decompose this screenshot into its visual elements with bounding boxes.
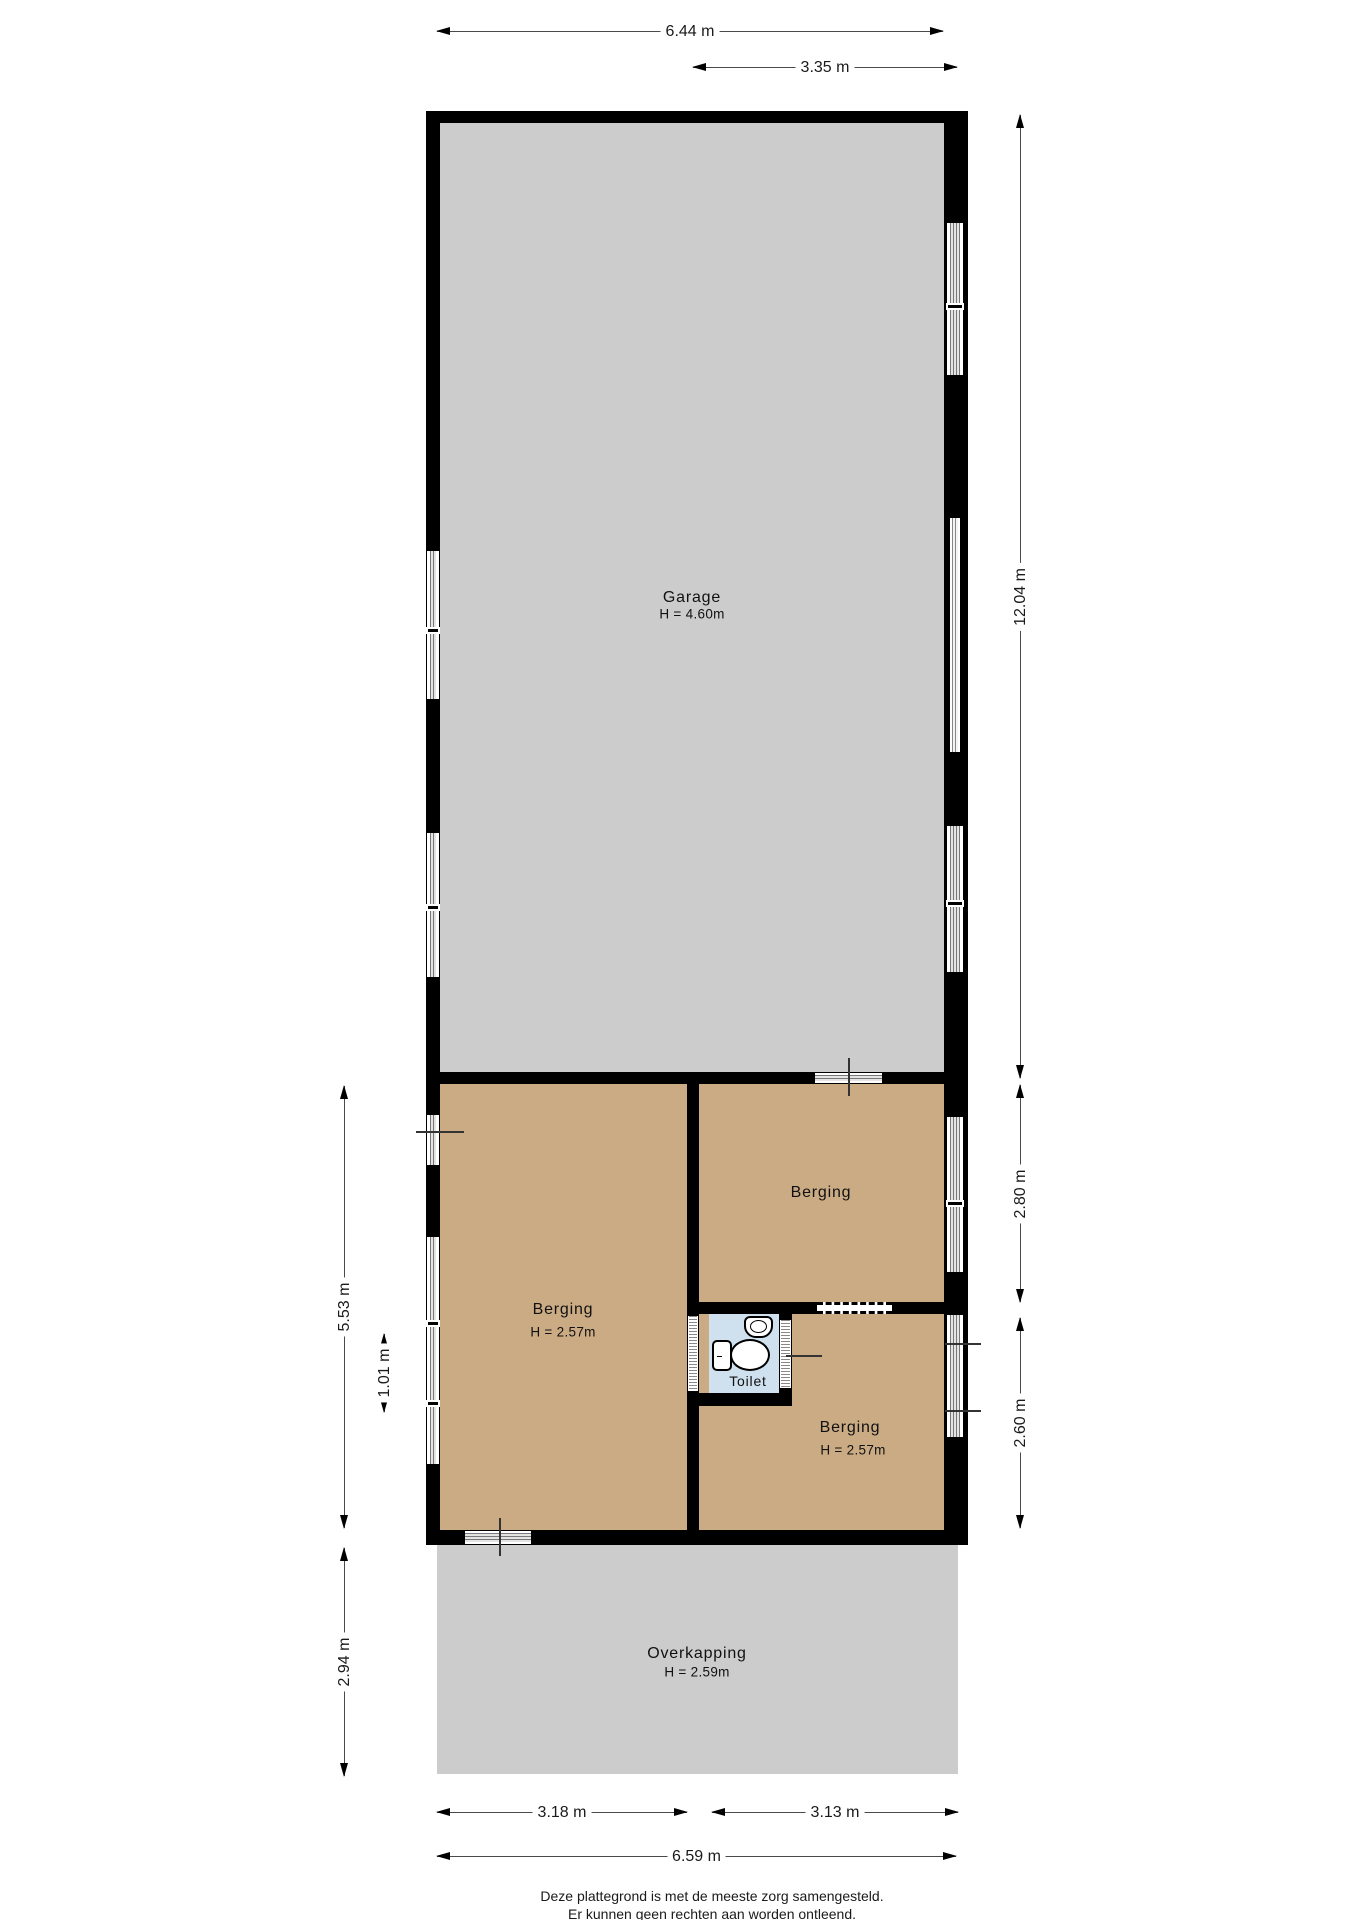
window-icon bbox=[947, 220, 963, 378]
wall-opening-dashed bbox=[817, 1302, 892, 1314]
window-icon bbox=[947, 823, 963, 975]
dimension-value: 5.53 m bbox=[335, 1278, 355, 1337]
dimension-bottom-right: 3.13 m bbox=[712, 1812, 958, 1813]
arrow-left-icon bbox=[692, 63, 706, 71]
window-icon bbox=[462, 1531, 534, 1544]
floorplan-page: Garage H = 4.60m Berging H = 2.57m Bergi… bbox=[0, 0, 1358, 1920]
footer-disclaimer-line1: Deze plattegrond is met de meeste zorg s… bbox=[540, 1888, 883, 1904]
window-mullion-icon bbox=[426, 1400, 440, 1407]
dimension-value: 12.04 m bbox=[1011, 563, 1031, 631]
window-icon bbox=[950, 515, 960, 755]
dimension-top-partial: 3.35 m bbox=[693, 67, 957, 68]
arrow-right-icon bbox=[945, 1808, 959, 1816]
window-icon bbox=[947, 1312, 963, 1440]
arrow-left-icon bbox=[711, 1808, 725, 1816]
berging-bottom-right-height-label: H = 2.57m bbox=[820, 1443, 885, 1458]
arrow-left-icon bbox=[436, 1852, 450, 1860]
footer-disclaimer-line2: Er kunnen geen rechten aan worden ontlee… bbox=[568, 1906, 856, 1920]
window-icon bbox=[427, 1112, 439, 1168]
dimension-value: 2.94 m bbox=[335, 1633, 355, 1692]
arrow-right-icon bbox=[943, 1852, 957, 1860]
window-mullion-icon bbox=[946, 303, 964, 310]
dimension-left-berging: 5.53 m bbox=[344, 1086, 345, 1528]
dimension-value: 3.13 m bbox=[806, 1803, 865, 1823]
dimension-left-overkapping: 2.94 m bbox=[344, 1548, 345, 1776]
window-tick-icon bbox=[786, 1355, 822, 1357]
arrow-down-icon bbox=[1016, 1515, 1024, 1529]
toilet-bowl-icon bbox=[730, 1339, 770, 1371]
sink-icon bbox=[744, 1316, 773, 1338]
window-tick-icon bbox=[416, 1131, 464, 1133]
dimension-value: 1.01 m bbox=[375, 1344, 395, 1403]
wall-toilet-bottom bbox=[699, 1393, 792, 1406]
arrow-up-icon bbox=[1016, 1317, 1024, 1331]
berging-left-label: Berging bbox=[533, 1301, 594, 1319]
berging-bottom-right-label: Berging bbox=[820, 1419, 881, 1437]
window-mullion-icon bbox=[946, 900, 964, 907]
dimension-bottom-total: 6.59 m bbox=[437, 1856, 956, 1857]
overkapping-height-label: H = 2.59m bbox=[664, 1665, 729, 1680]
arrow-left-icon bbox=[436, 1808, 450, 1816]
window-icon bbox=[427, 548, 439, 702]
dimension-value: 3.18 m bbox=[533, 1803, 592, 1823]
arrow-down-icon bbox=[340, 1763, 348, 1777]
toilet-door-right-icon bbox=[780, 1318, 791, 1390]
arrow-right-icon bbox=[674, 1808, 688, 1816]
dimension-right-garage: 12.04 m bbox=[1020, 115, 1021, 1078]
toilet-door-left-icon bbox=[688, 1314, 698, 1393]
window-icon bbox=[427, 1234, 439, 1467]
dimension-value: 3.35 m bbox=[796, 58, 855, 78]
arrow-right-icon bbox=[944, 63, 958, 71]
dimension-right-berging-top: 2.80 m bbox=[1020, 1085, 1021, 1302]
window-tick-icon bbox=[945, 1410, 981, 1412]
arrow-right-icon bbox=[930, 27, 944, 35]
window-mullion-icon bbox=[426, 904, 440, 911]
toilet-tank-icon bbox=[712, 1340, 732, 1371]
dimension-right-berging-bottom: 2.60 m bbox=[1020, 1318, 1021, 1528]
garage-label: Garage bbox=[663, 589, 721, 607]
arrow-up-icon bbox=[340, 1547, 348, 1561]
dimension-value: 2.60 m bbox=[1011, 1394, 1031, 1453]
berging-left-height-label: H = 2.57m bbox=[530, 1325, 595, 1340]
window-tick-icon bbox=[499, 1518, 501, 1556]
arrow-down-icon bbox=[1016, 1065, 1024, 1079]
toilet-label: Toilet bbox=[729, 1373, 766, 1389]
dimension-value: 6.44 m bbox=[661, 22, 720, 42]
dimension-top-total: 6.44 m bbox=[437, 31, 943, 32]
berging-top-right-label: Berging bbox=[791, 1184, 852, 1202]
window-tick-icon bbox=[848, 1058, 850, 1096]
arrow-down-icon bbox=[1016, 1289, 1024, 1303]
arrow-left-icon bbox=[436, 27, 450, 35]
wall-top bbox=[426, 111, 968, 123]
arrow-up-icon bbox=[1016, 1084, 1024, 1098]
window-mullion-icon bbox=[426, 627, 440, 634]
arrow-down-icon bbox=[340, 1515, 348, 1529]
arrow-up-icon bbox=[340, 1085, 348, 1099]
wall-middle-horizontal bbox=[687, 1302, 944, 1314]
dimension-bottom-left: 3.18 m bbox=[437, 1812, 687, 1813]
window-mullion-icon bbox=[946, 1200, 964, 1207]
dimension-left-window-pane: 1.01 m bbox=[384, 1334, 385, 1412]
overkapping-label: Overkapping bbox=[647, 1645, 747, 1663]
garage-height-label: H = 4.60m bbox=[659, 607, 724, 622]
arrow-up-icon bbox=[1016, 114, 1024, 128]
dimension-value: 6.59 m bbox=[667, 1847, 726, 1867]
dimension-value: 2.80 m bbox=[1011, 1164, 1031, 1223]
window-mullion-icon bbox=[426, 1320, 440, 1327]
window-icon bbox=[427, 830, 439, 980]
window-icon bbox=[947, 1114, 963, 1275]
window-tick-icon bbox=[945, 1343, 981, 1345]
